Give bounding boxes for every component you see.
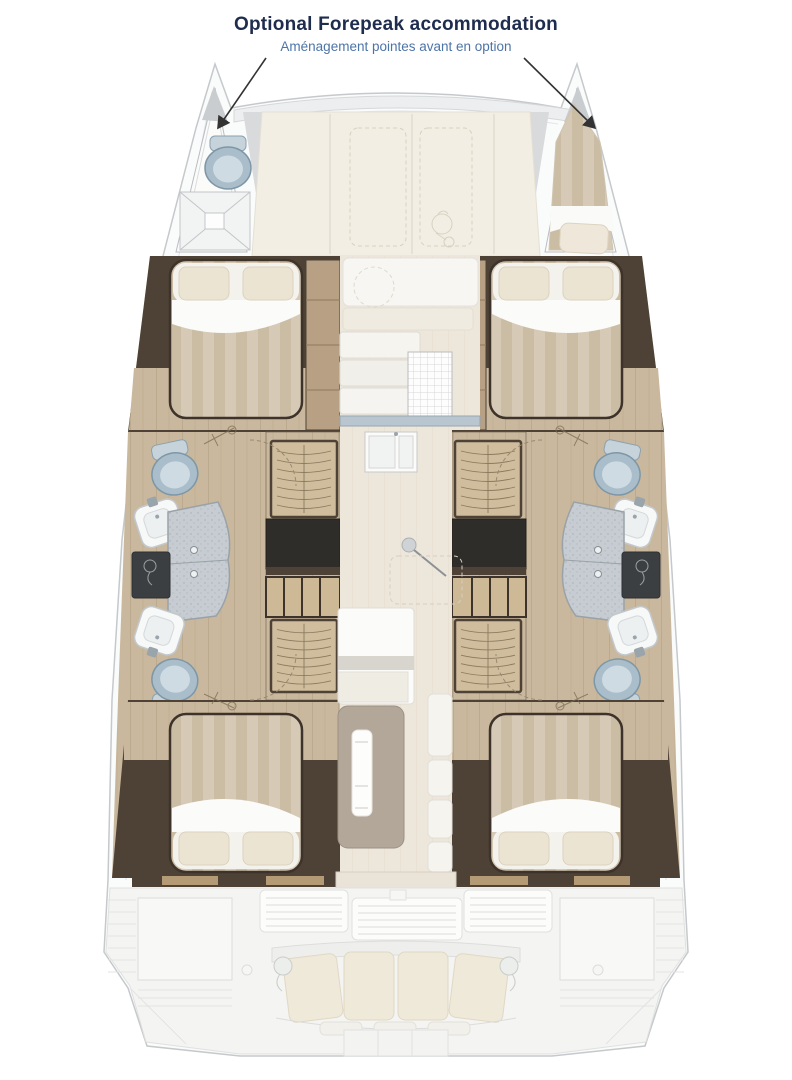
salon-island bbox=[338, 608, 414, 704]
companionway-opening bbox=[266, 519, 340, 569]
starboard-hull-interior bbox=[452, 256, 680, 878]
louvre-vent bbox=[260, 890, 552, 940]
caption-subtitle: Aménagement pointes avant en option bbox=[0, 39, 792, 54]
counter-edge bbox=[340, 416, 480, 426]
bench-cushion bbox=[428, 760, 452, 796]
boat-deck-plan-figure: Optional Forepeak accommodation Aménagem… bbox=[0, 0, 792, 1080]
caption-title: Optional Forepeak accommodation bbox=[0, 14, 792, 36]
transom-steps bbox=[344, 1030, 448, 1056]
bench-cushion bbox=[428, 842, 452, 872]
dining-table bbox=[338, 706, 404, 848]
galley-sink bbox=[365, 432, 417, 472]
forward-seating bbox=[343, 258, 478, 330]
forward-cabin-bed bbox=[170, 260, 302, 418]
storage-locker bbox=[560, 898, 654, 980]
bench-cushion bbox=[428, 800, 452, 838]
forward-lounge bbox=[252, 112, 540, 256]
winch-icon bbox=[500, 957, 518, 975]
aft-bulkhead bbox=[132, 872, 660, 888]
companionway-stairs bbox=[266, 577, 340, 617]
galley-stove bbox=[408, 352, 452, 422]
companionway-column bbox=[266, 432, 340, 700]
cockpit bbox=[106, 872, 686, 1056]
storage-locker bbox=[138, 898, 232, 980]
aft-cabin-bed bbox=[170, 714, 302, 872]
winch-icon bbox=[274, 957, 292, 975]
forepeak-shower-tray bbox=[180, 192, 250, 250]
port-hull-interior bbox=[112, 256, 340, 878]
shower-fixture-panel bbox=[132, 552, 170, 598]
deck-plan-svg bbox=[0, 0, 792, 1080]
figure-caption: Optional Forepeak accommodation Aménagem… bbox=[0, 14, 792, 54]
salon-bench bbox=[428, 694, 452, 872]
bench-cushion bbox=[428, 694, 452, 756]
salon-door bbox=[336, 872, 456, 888]
forepeak-toilet-icon bbox=[205, 136, 251, 189]
